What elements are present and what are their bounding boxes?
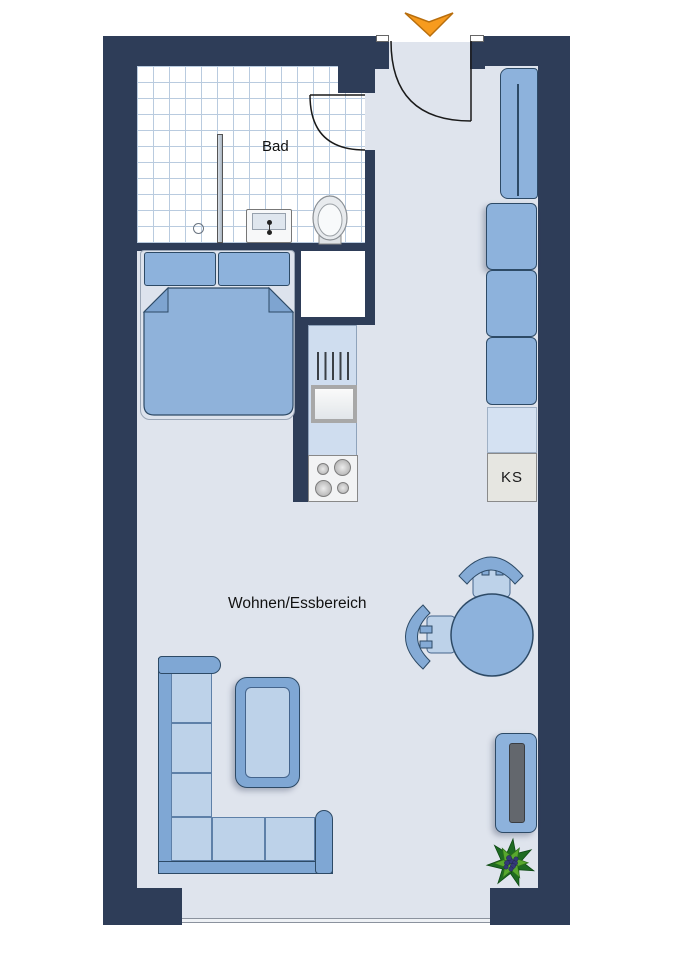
cabinet-light bbox=[487, 407, 537, 453]
burner-small-2 bbox=[337, 482, 349, 494]
faucet-dot-top bbox=[267, 220, 272, 225]
wall-bottom-left bbox=[103, 888, 182, 925]
bathroom-wall-chunk bbox=[338, 66, 375, 93]
entrance-arrow-icon bbox=[405, 13, 453, 36]
kitchen-wall-stub bbox=[293, 325, 308, 502]
sofa-armrest-right bbox=[315, 810, 333, 874]
bathroom-label: Bad bbox=[262, 138, 289, 155]
entry-jamb-right bbox=[470, 35, 484, 42]
wardrobe-door-line bbox=[517, 84, 519, 196]
cabinet-1 bbox=[486, 203, 537, 270]
sofa-back-left bbox=[158, 658, 172, 874]
cooktop bbox=[308, 455, 358, 502]
sofa-cushion-5 bbox=[265, 817, 315, 861]
entry-threshold bbox=[389, 42, 471, 66]
floor-plan: KS bbox=[0, 0, 679, 960]
storage-wall-bottom bbox=[293, 317, 375, 325]
sofa-cushion-1 bbox=[171, 673, 212, 723]
burner-small-1 bbox=[317, 463, 329, 475]
burner-large-2 bbox=[315, 480, 332, 497]
burner-large-1 bbox=[334, 459, 351, 476]
fridge-label: KS bbox=[501, 469, 523, 486]
wall-top bbox=[103, 36, 570, 66]
fridge: KS bbox=[487, 453, 537, 502]
living-dining-label: Wohnen/Essbereich bbox=[228, 595, 366, 613]
cabinet-3 bbox=[486, 337, 537, 405]
shower-screen bbox=[217, 134, 223, 243]
pillow-right bbox=[218, 252, 290, 286]
storage-wall-right bbox=[365, 243, 375, 324]
shower-drain bbox=[193, 223, 204, 234]
entry-jamb-left bbox=[376, 35, 389, 42]
window-recess bbox=[182, 888, 490, 918]
faucet-dot-bottom bbox=[267, 230, 272, 235]
cabinet-2 bbox=[486, 270, 537, 337]
wardrobe-tall bbox=[500, 68, 538, 199]
sideboard-tv bbox=[509, 743, 525, 823]
coffee-table-top bbox=[245, 687, 290, 778]
wall-bottom-right bbox=[490, 888, 570, 925]
storage-room-floor bbox=[301, 251, 365, 317]
bathroom-partition bbox=[365, 150, 375, 243]
wall-right bbox=[538, 36, 570, 925]
window-line-inner bbox=[182, 922, 490, 924]
sofa-back-bottom bbox=[158, 861, 333, 874]
sofa-cushion-2 bbox=[171, 723, 212, 773]
sofa-cushion-corner bbox=[171, 817, 212, 861]
pillow-left bbox=[144, 252, 216, 286]
kitchen-sink bbox=[311, 385, 357, 423]
sofa-cushion-4 bbox=[212, 817, 265, 861]
wall-left bbox=[103, 36, 137, 925]
sofa-cushion-3 bbox=[171, 773, 212, 817]
sofa-armrest-top bbox=[158, 656, 221, 674]
